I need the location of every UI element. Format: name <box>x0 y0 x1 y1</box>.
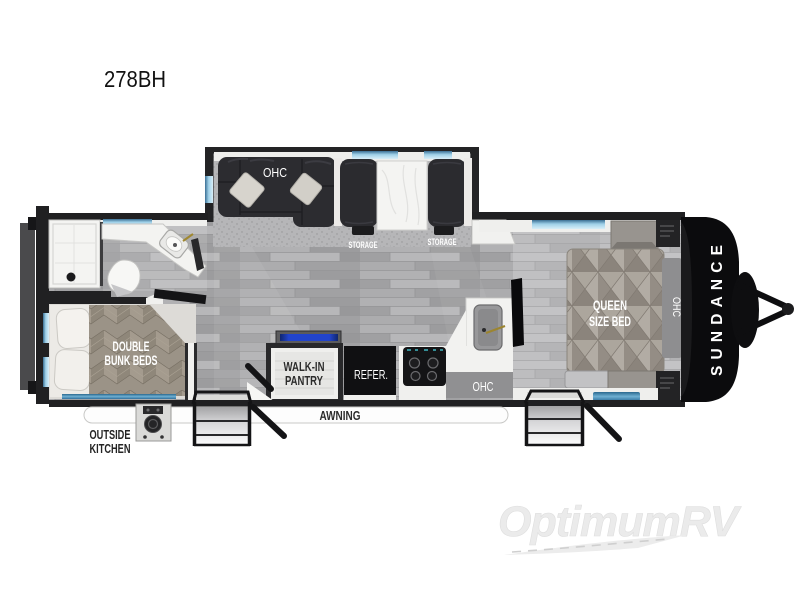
svg-text:BUNK BEDS: BUNK BEDS <box>105 353 158 368</box>
svg-text:SIZE BED: SIZE BED <box>589 314 631 329</box>
svg-text:DOUBLE: DOUBLE <box>113 339 150 354</box>
svg-text:STORAGE: STORAGE <box>349 240 378 250</box>
svg-text:STORAGE: STORAGE <box>428 237 457 247</box>
svg-text:WALK-IN: WALK-IN <box>284 360 325 374</box>
svg-text:AWNING: AWNING <box>320 408 361 423</box>
svg-text:KITCHEN: KITCHEN <box>90 441 131 456</box>
svg-text:278BH: 278BH <box>104 66 166 92</box>
svg-text:OHC: OHC <box>263 165 287 180</box>
svg-text:PANTRY: PANTRY <box>285 374 324 388</box>
svg-text:OptimumRV: OptimumRV <box>498 498 742 546</box>
svg-text:OHC: OHC <box>670 297 682 317</box>
svg-text:OUTSIDE: OUTSIDE <box>90 427 131 442</box>
svg-text:OHC: OHC <box>473 379 494 394</box>
svg-text:REFER.: REFER. <box>354 368 388 382</box>
svg-text:QUEEN: QUEEN <box>593 298 627 313</box>
